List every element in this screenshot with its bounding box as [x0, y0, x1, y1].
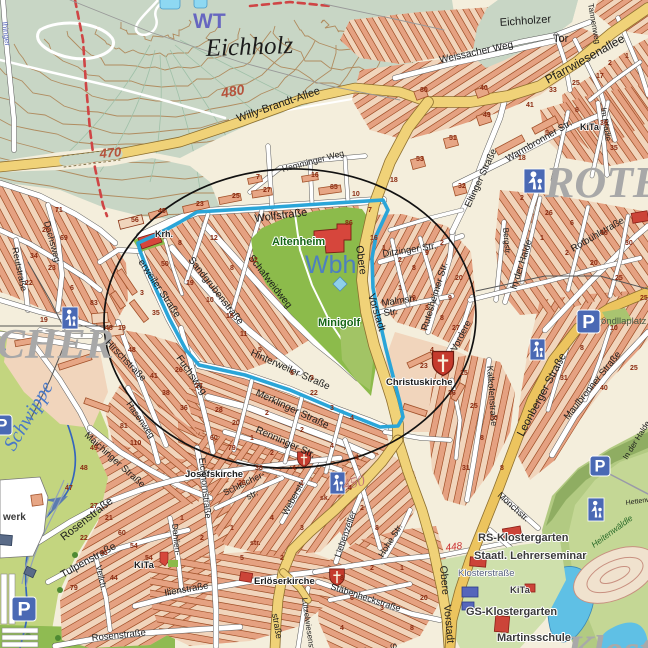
svg-text:6: 6	[70, 285, 74, 292]
svg-text:Wbh: Wbh	[305, 251, 356, 279]
svg-text:44: 44	[110, 575, 118, 582]
svg-text:Krh.: Krh.	[155, 229, 173, 239]
svg-text:41: 41	[150, 373, 158, 380]
svg-text:40: 40	[600, 385, 608, 392]
svg-text:28: 28	[215, 407, 223, 414]
svg-text:41: 41	[526, 102, 534, 109]
svg-text:3: 3	[380, 605, 384, 612]
svg-text:2: 2	[608, 60, 612, 67]
svg-text:50: 50	[490, 415, 498, 422]
svg-text:36: 36	[448, 390, 456, 397]
svg-text:11: 11	[240, 331, 248, 338]
svg-text:16: 16	[311, 172, 319, 179]
svg-text:18: 18	[518, 155, 526, 162]
svg-text:80: 80	[420, 87, 428, 94]
svg-text:WT: WT	[193, 10, 226, 33]
svg-text:1: 1	[250, 435, 254, 442]
svg-text:4: 4	[355, 455, 359, 462]
svg-text:27: 27	[263, 187, 271, 194]
svg-text:Martinsschule: Martinsschule	[497, 632, 571, 644]
svg-text:15: 15	[460, 370, 468, 377]
svg-text:Minigolf: Minigolf	[318, 317, 360, 329]
svg-text:27: 27	[195, 383, 203, 390]
svg-text:25: 25	[630, 365, 638, 372]
svg-text:2: 2	[360, 505, 364, 512]
svg-text:2: 2	[280, 555, 284, 562]
svg-text:17: 17	[596, 73, 604, 80]
svg-text:110: 110	[130, 440, 141, 447]
svg-text:8: 8	[575, 107, 579, 114]
svg-text:4: 4	[350, 415, 354, 422]
svg-text:ondllaplatz: ondllaplatz	[601, 316, 647, 327]
svg-text:1: 1	[625, 53, 629, 60]
svg-text:22: 22	[80, 535, 88, 542]
svg-text:2: 2	[265, 410, 269, 417]
svg-text:3: 3	[140, 290, 144, 297]
svg-text:38: 38	[162, 390, 170, 397]
svg-text:8: 8	[230, 265, 234, 272]
svg-text:CHER: CHER	[0, 322, 114, 368]
svg-text:8: 8	[340, 575, 344, 582]
svg-text:Josefskirche: Josefskirche	[185, 469, 243, 480]
svg-text:Str.: Str.	[383, 306, 399, 319]
svg-text:40: 40	[480, 85, 488, 92]
svg-text:6: 6	[350, 595, 354, 602]
svg-text:49: 49	[483, 112, 491, 119]
svg-text:25: 25	[232, 193, 240, 200]
svg-text:RS-Klostergarten: RS-Klostergarten	[478, 532, 569, 544]
svg-text:1: 1	[382, 245, 386, 252]
svg-text:48: 48	[105, 325, 113, 332]
svg-text:81: 81	[120, 423, 128, 430]
svg-text:50: 50	[161, 261, 169, 268]
svg-text:1: 1	[398, 285, 402, 292]
svg-text:48: 48	[158, 208, 166, 215]
svg-text:4: 4	[330, 443, 334, 450]
svg-text:str.: str.	[250, 540, 261, 547]
svg-text:54: 54	[130, 543, 138, 550]
svg-text:47: 47	[65, 485, 73, 492]
svg-text:27: 27	[452, 325, 460, 332]
svg-text:8: 8	[580, 345, 584, 352]
svg-text:P: P	[595, 458, 606, 476]
svg-text:69: 69	[60, 235, 68, 242]
svg-text:Tor: Tor	[553, 33, 569, 45]
svg-text:10: 10	[610, 325, 618, 332]
svg-text:20: 20	[232, 420, 240, 427]
svg-text:56: 56	[131, 217, 139, 224]
svg-text:Erlöserkirche: Erlöserkirche	[254, 576, 315, 587]
svg-text:2: 2	[440, 240, 444, 247]
svg-text:2: 2	[200, 535, 204, 542]
svg-text:12: 12	[250, 257, 258, 264]
svg-text:22: 22	[310, 390, 318, 397]
svg-text:48: 48	[128, 347, 136, 354]
svg-text:10: 10	[352, 191, 360, 198]
svg-text:8: 8	[412, 265, 416, 272]
svg-text:54: 54	[145, 555, 153, 562]
svg-text:21: 21	[105, 515, 113, 522]
svg-text:19: 19	[186, 280, 194, 287]
svg-text:18: 18	[390, 177, 398, 184]
svg-text:49: 49	[90, 445, 98, 452]
svg-text:2: 2	[370, 565, 374, 572]
svg-text:4: 4	[340, 625, 344, 632]
svg-text:Klosterstraße: Klosterstraße	[458, 568, 515, 579]
svg-text:25: 25	[640, 295, 648, 302]
svg-text:10: 10	[206, 297, 214, 304]
svg-text:48: 48	[80, 465, 88, 472]
svg-text:3: 3	[425, 305, 429, 312]
svg-text:83: 83	[90, 300, 98, 307]
svg-text:8: 8	[480, 435, 484, 442]
svg-text:7: 7	[256, 174, 260, 181]
svg-text:Altenheim: Altenheim	[272, 236, 325, 248]
svg-text:1: 1	[180, 515, 184, 522]
svg-text:KiTa: KiTa	[580, 122, 600, 132]
svg-text:6: 6	[570, 220, 574, 227]
svg-text:5: 5	[240, 555, 244, 562]
svg-text:51: 51	[449, 135, 457, 142]
svg-text:GS-Klostergarten: GS-Klostergarten	[466, 606, 557, 618]
svg-text:4: 4	[430, 347, 434, 354]
svg-text:2: 2	[398, 257, 402, 264]
svg-text:23: 23	[420, 363, 428, 370]
svg-text:26: 26	[238, 480, 246, 487]
svg-text:25: 25	[572, 80, 580, 87]
svg-text:79: 79	[228, 445, 236, 452]
svg-text:6: 6	[290, 370, 294, 377]
svg-text:23: 23	[196, 201, 204, 208]
svg-text:34: 34	[30, 253, 38, 260]
svg-text:20: 20	[420, 595, 428, 602]
svg-text:8: 8	[178, 240, 182, 247]
svg-text:60: 60	[210, 435, 218, 442]
svg-text:3: 3	[300, 525, 304, 532]
svg-text:9: 9	[448, 295, 452, 302]
svg-text:26: 26	[545, 210, 553, 217]
svg-text:Eichholz: Eichholz	[204, 32, 294, 62]
svg-text:79: 79	[70, 585, 78, 592]
svg-text:22: 22	[25, 280, 33, 287]
svg-text:7: 7	[368, 207, 372, 214]
svg-text:2: 2	[300, 427, 304, 434]
svg-text:26: 26	[175, 367, 183, 374]
svg-text:P: P	[17, 599, 30, 621]
svg-text:33: 33	[549, 87, 557, 94]
svg-text:8: 8	[410, 625, 414, 632]
svg-text:23: 23	[48, 265, 56, 272]
svg-text:2: 2	[565, 250, 569, 257]
svg-text:1: 1	[300, 480, 304, 487]
svg-text:9: 9	[412, 295, 416, 302]
svg-text:19: 19	[118, 325, 126, 332]
svg-text:35: 35	[610, 145, 618, 152]
svg-text:16: 16	[226, 313, 234, 320]
svg-text:4: 4	[292, 465, 296, 472]
svg-text:8: 8	[375, 525, 379, 532]
svg-text:25: 25	[615, 275, 623, 282]
svg-text:35: 35	[152, 310, 160, 317]
svg-text:60: 60	[118, 530, 126, 537]
svg-text:20: 20	[590, 260, 598, 267]
svg-text:1: 1	[400, 565, 404, 572]
svg-text:86: 86	[345, 220, 353, 227]
svg-text:32: 32	[458, 183, 466, 190]
svg-text:85: 85	[330, 184, 338, 191]
svg-text:Kloster: Kloster	[565, 627, 648, 648]
svg-text:P: P	[582, 311, 595, 332]
svg-text:werk: werk	[2, 512, 26, 523]
svg-text:Staatl. Lehrerseminar: Staatl. Lehrerseminar	[474, 550, 587, 562]
svg-text:12: 12	[210, 235, 218, 242]
svg-text:KiTa: KiTa	[510, 585, 531, 596]
svg-text:Christuskirche: Christuskirche	[386, 377, 453, 388]
svg-text:5: 5	[258, 347, 262, 354]
svg-text:38: 38	[255, 465, 263, 472]
svg-text:8: 8	[440, 315, 444, 322]
svg-text:71: 71	[55, 207, 63, 214]
svg-text:3: 3	[310, 375, 314, 382]
svg-text:19: 19	[40, 317, 48, 324]
svg-text:1: 1	[230, 525, 234, 532]
svg-text:27: 27	[90, 503, 98, 510]
svg-text:53: 53	[416, 156, 424, 163]
svg-text:8: 8	[500, 465, 504, 472]
svg-text:4: 4	[270, 515, 274, 522]
svg-text:36: 36	[180, 405, 188, 412]
svg-text:20: 20	[455, 275, 463, 282]
svg-text:1: 1	[540, 235, 544, 242]
svg-text:36: 36	[600, 120, 608, 127]
svg-text:4: 4	[348, 485, 352, 492]
svg-text:5: 5	[545, 130, 549, 137]
svg-text:Obere: Obere	[437, 565, 452, 595]
svg-text:2: 2	[520, 195, 524, 202]
svg-text:9: 9	[425, 250, 429, 257]
svg-text:25: 25	[42, 227, 50, 234]
svg-text:25: 25	[470, 403, 478, 410]
svg-text:470: 470	[98, 144, 123, 161]
svg-text:30: 30	[625, 240, 633, 247]
svg-text:16: 16	[370, 235, 378, 242]
svg-text:ROTE: ROTE	[544, 158, 648, 207]
svg-text:2: 2	[270, 450, 274, 457]
svg-text:3: 3	[330, 405, 334, 412]
svg-text:sk.: sk.	[320, 495, 330, 502]
svg-text:45: 45	[600, 230, 608, 237]
svg-text:31: 31	[560, 375, 568, 382]
svg-text:45: 45	[100, 550, 108, 557]
svg-text:31: 31	[462, 465, 470, 472]
